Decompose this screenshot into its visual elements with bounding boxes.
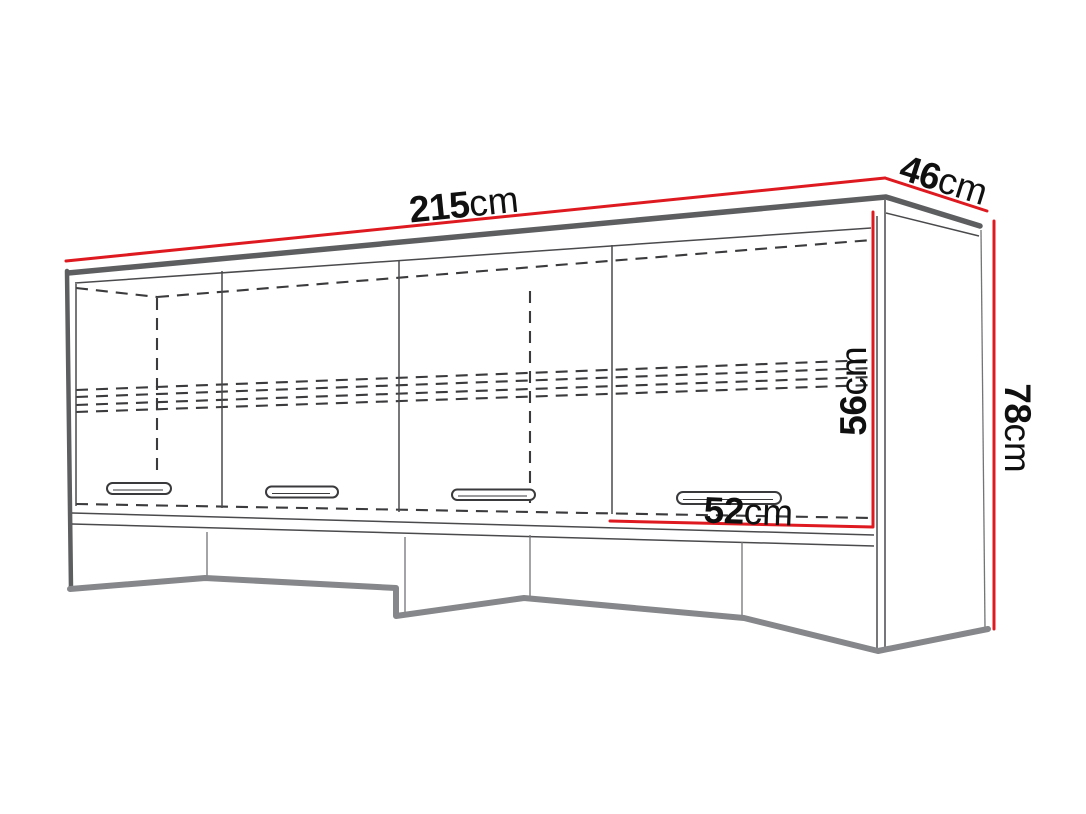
width-dimension-label: 215cm (407, 179, 520, 231)
cabinet-bottom-shadow (70, 578, 988, 651)
shelf-dashed-line-2 (76, 368, 872, 397)
door-1-handle (107, 483, 171, 494)
height-dimension-label: 78cm (997, 383, 1038, 472)
door-width-dimension-label: 52cm (703, 489, 794, 533)
opening-height-dimension-label: 56cm (833, 346, 874, 435)
diagram-canvas: 215cm 46cm 78cm 56cm 52cm (0, 0, 1086, 814)
left-side-edge (67, 271, 71, 589)
door-2-handle (266, 487, 338, 498)
side-panel-back-edge (981, 230, 985, 628)
shelf-dashed-line-4 (76, 385, 872, 412)
back-top-edge-dashed-line (157, 240, 872, 297)
cabinet-interior-dashed-lines (76, 240, 872, 518)
back-top-left-depth-dashed-line (76, 288, 157, 297)
door-handles (107, 483, 781, 504)
top-panel-front-edge (68, 197, 980, 273)
valance-bottom-edge (70, 578, 988, 651)
door-3-handle (452, 490, 535, 501)
furniture-dimension-diagram: 215cm 46cm 78cm 56cm 52cm (0, 0, 1086, 814)
shelf-dashed-line-3 (76, 377, 872, 405)
top-inner-side-line (886, 213, 979, 236)
shelf-dashed-line-1 (76, 360, 872, 390)
cabinet-top-edge (68, 197, 980, 283)
dimension-annotations: 215cm 46cm 78cm 56cm 52cm (66, 147, 1038, 629)
